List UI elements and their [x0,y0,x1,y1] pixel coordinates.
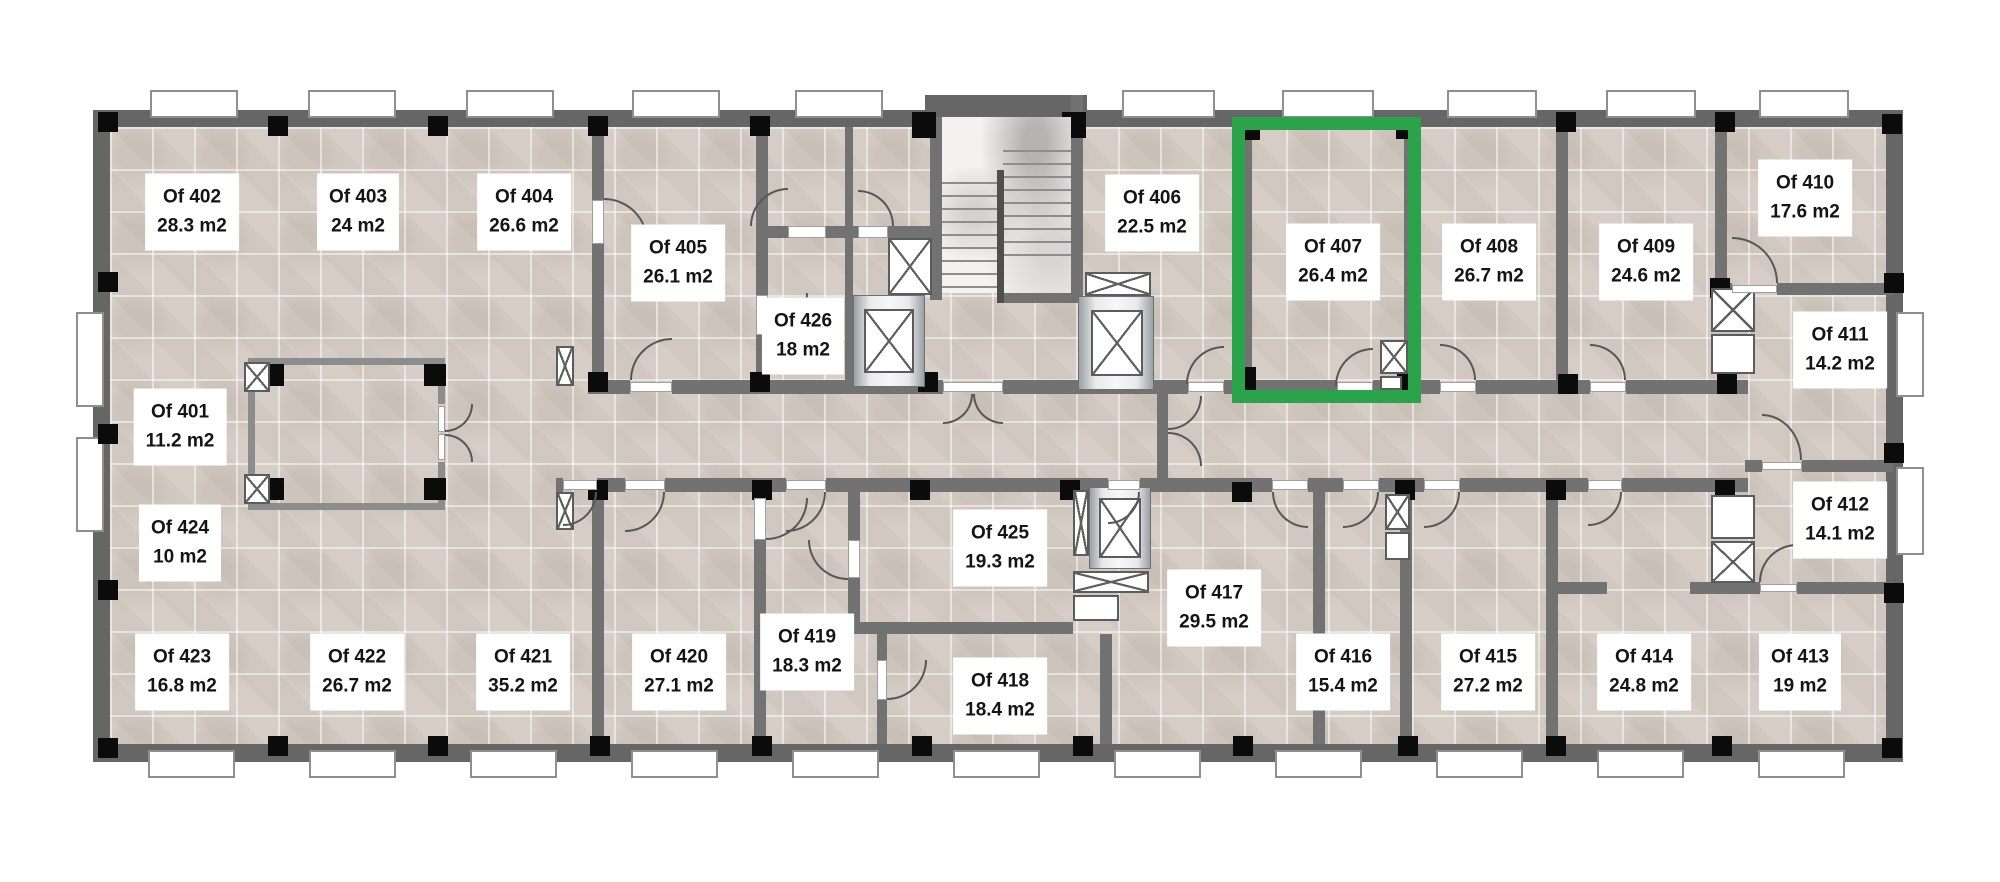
wall [1797,582,1893,594]
room-area: 14.1 m2 [1805,523,1875,544]
window [1436,750,1523,778]
room-label-of-417[interactable]: Of 41729.5 m2 [1167,570,1261,647]
room-label-of-410[interactable]: Of 41017.6 m2 [1758,160,1852,237]
vent-shaft [1073,571,1149,593]
wall [845,238,853,384]
column [1558,374,1578,394]
window [76,437,104,532]
window [1122,90,1215,118]
column [98,112,118,132]
window [792,750,879,778]
door-sill [1272,480,1308,490]
room-name: Of 410 [1776,173,1834,194]
room-area: 29.5 m2 [1179,611,1249,632]
room-label-of-407[interactable]: Of 40726.4 m2 [1286,224,1380,301]
column [752,480,772,500]
room-name: Of 413 [1771,647,1829,668]
room-name: Of 402 [163,187,221,208]
wall [1802,460,1893,472]
window [148,750,235,778]
room-name: Of 424 [151,518,209,539]
door-sill [788,226,826,238]
wall [1308,478,1343,492]
room-label-of-412[interactable]: Of 41214.1 m2 [1793,482,1887,559]
stair-rail [997,170,1004,303]
room-area: 26.6 m2 [489,215,559,236]
door-sill [786,480,826,490]
column [1884,583,1904,603]
wall [1140,478,1272,492]
elevator [853,295,925,387]
column [1717,374,1737,394]
column [1715,112,1735,132]
room-name: Of 408 [1460,237,1518,258]
wall [1690,582,1760,594]
room-area: 19.3 m2 [965,551,1035,572]
door-sill [1760,584,1797,592]
elevator-shaft [888,238,932,295]
window [1282,90,1374,118]
room-area: 24.8 m2 [1609,675,1679,696]
room-name: Of 425 [971,523,1029,544]
door-sill [592,200,604,244]
room-name: Of 404 [495,187,553,208]
room-label-of-416[interactable]: Of 41615.4 m2 [1296,634,1390,711]
room-name: Of 420 [650,647,708,668]
room-label-of-425[interactable]: Of 42519.3 m2 [953,510,1047,587]
column [268,736,288,756]
room-area: 35.2 m2 [488,675,558,696]
window [1114,750,1201,778]
window [632,90,720,118]
door-sill [630,382,672,392]
elevator-car [864,309,914,373]
room-area: 26.4 m2 [1298,265,1368,286]
wall [1886,110,1903,762]
wall [1556,127,1568,384]
room-label-of-415[interactable]: Of 41527.2 m2 [1441,634,1535,711]
shaft [1711,541,1755,583]
door-sill [848,540,860,578]
wall [592,127,604,202]
window [150,90,238,118]
door-sill [877,660,887,700]
room-area: 28.3 m2 [157,215,227,236]
column [588,372,608,392]
shaft [1711,495,1755,539]
room-area: 24.6 m2 [1611,265,1681,286]
door-sill [1108,480,1140,490]
column [98,738,118,758]
wall [1745,460,1762,472]
column [1882,738,1902,758]
window [1447,90,1537,118]
elevator-car [1091,310,1143,376]
window [1759,90,1849,118]
column [98,424,118,444]
wall [1777,283,1893,295]
shaft [1385,494,1410,530]
column [1546,480,1566,500]
door-sill [1762,462,1802,470]
room-label-of-404[interactable]: Of 40426.6 m2 [477,174,571,251]
column [1882,114,1902,134]
shaft [1073,490,1089,556]
room-label-of-405[interactable]: Of 40526.1 m2 [631,225,725,302]
wall [1546,492,1558,744]
room-area: 10 m2 [153,546,207,567]
column [1073,736,1093,756]
door-sill [1590,382,1626,392]
room-label-of-421[interactable]: Of 42135.2 m2 [476,634,570,711]
window [1896,312,1924,397]
wall [997,293,1083,303]
room-name: Of 426 [774,311,832,332]
room-label-of-402[interactable]: Of 40228.3 m2 [145,174,239,251]
room-area: 18 m2 [776,339,830,360]
room-name: Of 406 [1123,188,1181,209]
wall [1460,478,1588,492]
room-area: 11.2 m2 [146,430,215,451]
wall [592,492,604,744]
column [1398,736,1418,756]
shaft [244,362,270,392]
column [910,480,930,500]
room-area: 26.1 m2 [643,266,713,287]
room-label-of-401[interactable]: Of 40111.2 m2 [134,389,227,466]
column [750,116,770,136]
room-name: Of 407 [1304,237,1362,258]
column [912,112,936,138]
shaft [1385,532,1410,560]
elevator [1078,296,1154,390]
window [308,90,396,118]
room-label-of-406[interactable]: Of 40622.5 m2 [1105,175,1199,252]
window [1896,467,1924,555]
column [588,116,608,136]
shaft [1711,334,1755,374]
window [1597,750,1684,778]
wall [1715,127,1727,283]
room-name: Of 409 [1617,237,1675,258]
column [1232,482,1252,502]
room-label-of-426[interactable]: Of 42618 m2 [762,298,844,375]
room-name: Of 416 [1314,647,1372,668]
room-area: 24 m2 [331,215,385,236]
shaft [1073,595,1119,621]
room-area: 26.7 m2 [322,675,392,696]
room-label-of-423[interactable]: Of 42316.8 m2 [135,634,229,711]
room-name: Of 423 [153,647,211,668]
room-label-of-414[interactable]: Of 41424.8 m2 [1597,634,1691,711]
room-label-of-420[interactable]: Of 42027.1 m2 [632,634,726,711]
window [631,750,718,778]
wall [556,478,563,492]
column [424,364,446,386]
column [98,272,118,292]
room-area: 27.2 m2 [1453,675,1523,696]
door-sill [1343,480,1379,490]
window [795,90,883,118]
room-label-of-408[interactable]: Of 40826.7 m2 [1442,224,1536,301]
door-sill [1424,480,1460,490]
door-sill [563,480,597,490]
room-name: Of 412 [1811,495,1869,516]
room-name: Of 401 [151,402,209,423]
room-name: Of 415 [1459,647,1517,668]
room-area: 27.1 m2 [644,675,714,696]
column [424,478,446,500]
window [1758,750,1845,778]
column [1712,736,1732,756]
wall [1546,582,1607,594]
room-name: Of 403 [329,187,387,208]
room-label-of-419[interactable]: Of 41918.3 m2 [760,614,854,691]
room-name: Of 414 [1615,647,1673,668]
room-area: 18.4 m2 [965,699,1035,720]
window [466,90,554,118]
room-name: Of 421 [494,647,552,668]
column [428,736,448,756]
wall [756,238,768,295]
wall [845,127,853,226]
door-sill [858,226,888,238]
room-name: Of 419 [778,627,836,648]
door-sill [438,434,445,460]
door-sill [1440,382,1476,392]
room-label-of-418[interactable]: Of 41818.4 m2 [953,658,1047,735]
column [752,736,772,756]
wall [848,622,1073,634]
door-sill [754,498,766,540]
room-name: Of 417 [1185,583,1243,604]
room-name: Of 411 [1811,325,1868,346]
column [1233,736,1253,756]
column [98,580,118,600]
window [953,750,1040,778]
room-area: 14.2 m2 [1805,353,1875,374]
door-sill [625,480,665,490]
column [912,736,932,756]
window [1275,750,1362,778]
wall [1157,394,1168,478]
shaft [1711,288,1755,332]
column [750,372,770,392]
column [1556,112,1576,132]
room-name: Of 418 [971,671,1029,692]
wall [592,244,604,384]
room-name: Of 422 [328,647,386,668]
window [76,312,104,407]
room-label-of-413[interactable]: Of 41319 m2 [1759,634,1841,711]
door-sill [438,406,445,432]
window [470,750,557,778]
window [309,750,396,778]
window [1606,90,1696,118]
wall [248,503,445,510]
shaft [244,474,270,504]
floor-plan-canvas: Of 40111.2 m2 Of 40228.3 m2 Of 40324 m2 … [0,0,2000,882]
room-area: 18.3 m2 [772,655,842,676]
room-label-of-424[interactable]: Of 42410 m2 [139,505,221,582]
room-area: 16.8 m2 [147,675,217,696]
vent-shaft [1085,272,1151,296]
column [1884,443,1904,463]
door-sill [1732,285,1777,293]
wall [1100,634,1112,744]
room-name: Of 405 [649,238,707,259]
room-label-of-422[interactable]: Of 42226.7 m2 [310,634,404,711]
stair-flight-right [1003,150,1071,260]
stair-flight-left [942,182,997,293]
room-area: 19 m2 [1773,675,1827,696]
column [268,116,288,136]
wall [756,226,934,238]
room-area: 15.4 m2 [1308,675,1378,696]
column [428,116,448,136]
shaft [556,346,574,386]
column [1546,736,1566,756]
column [590,736,610,756]
room-area: 26.7 m2 [1454,265,1524,286]
room-area: 17.6 m2 [1770,201,1840,222]
room-label-of-403[interactable]: Of 40324 m2 [317,174,399,251]
room-area: 22.5 m2 [1117,216,1187,237]
room-label-of-409[interactable]: Of 40924.6 m2 [1599,224,1693,301]
door-sill [1588,480,1622,490]
column [1884,273,1904,293]
door-sill [943,382,1003,392]
room-label-of-411[interactable]: Of 41114.2 m2 [1793,312,1887,389]
